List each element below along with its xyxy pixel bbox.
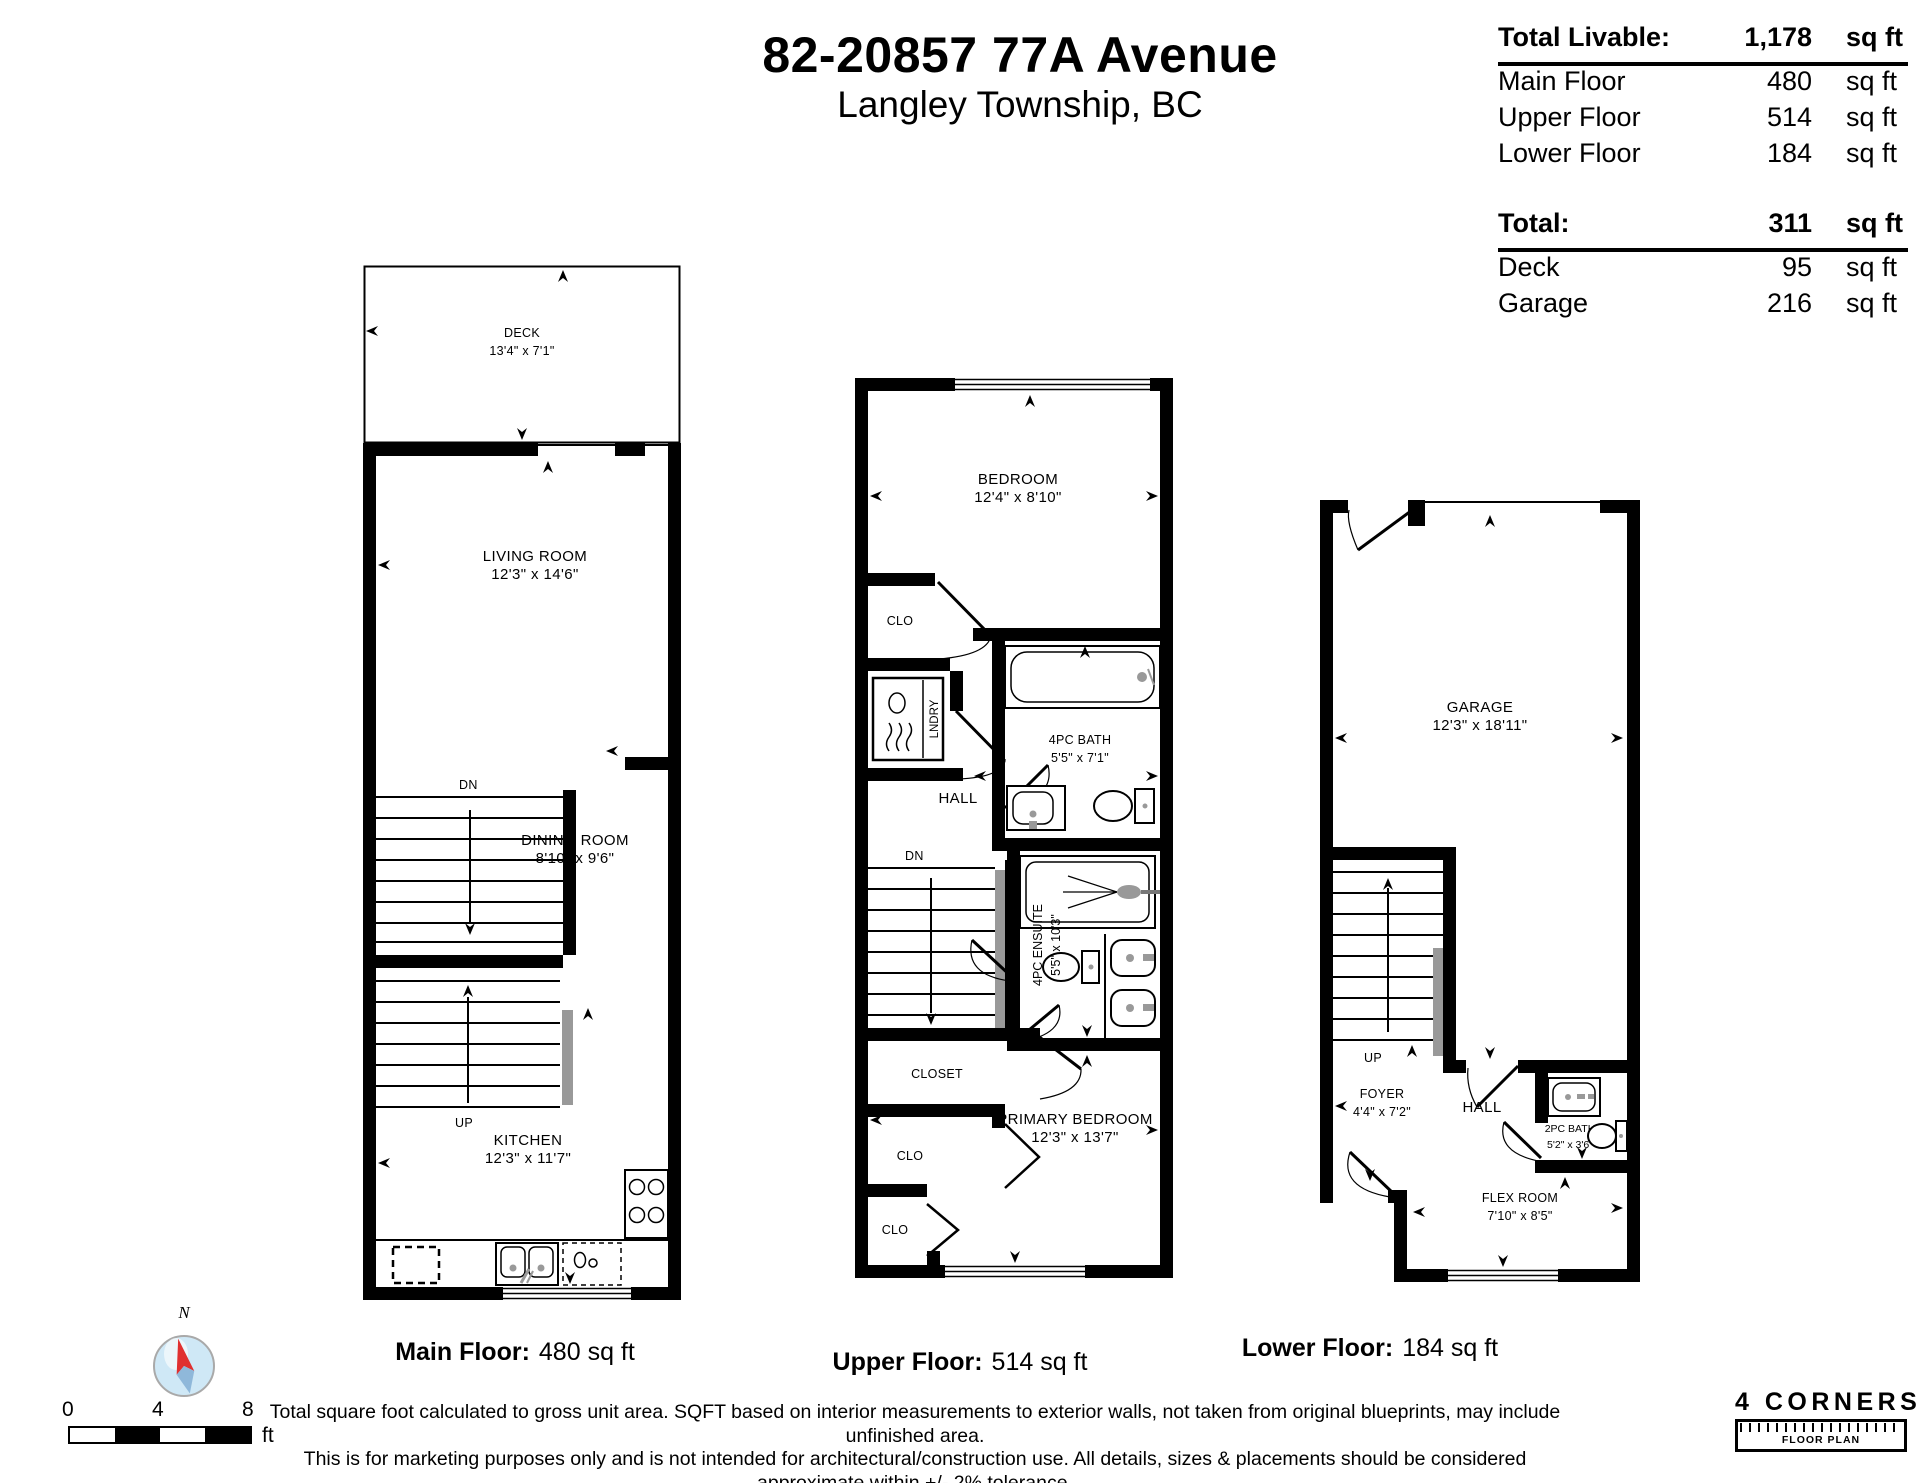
scale-tick-4: 4 <box>152 1398 164 1422</box>
entry-door-leaf <box>1358 508 1415 550</box>
deck-label: DECK <box>504 326 540 340</box>
caption-value: 480 sq ft <box>539 1338 635 1366</box>
bedroom-window <box>955 378 1150 391</box>
livable-value: 1,178 <box>1724 22 1812 53</box>
table-row: Lower Floor 184 sq ft <box>1498 138 1908 174</box>
toilet-icon <box>1588 1121 1627 1151</box>
lower-floor-caption: Lower Floor:184 sq ft <box>1160 1334 1580 1363</box>
stair-handrail <box>995 870 1005 1028</box>
living-room-label: LIVING ROOM <box>483 548 587 565</box>
sink-icon <box>1548 1078 1600 1116</box>
floorplan-sheet: 82-20857 77A Avenue Langley Township, BC… <box>0 0 1920 1483</box>
toilet-icon <box>1094 789 1154 823</box>
row-value: 514 <box>1724 102 1812 133</box>
foyer-label: FOYER <box>1360 1087 1405 1101</box>
row-value: 216 <box>1724 288 1812 319</box>
disclaimer-line2: This is for marketing purposes only and … <box>250 1448 1580 1483</box>
livable-unit: sq ft <box>1812 22 1908 53</box>
total-unit: sq ft <box>1812 208 1908 239</box>
double-vanity-icon <box>1105 934 1155 1038</box>
row-label: Garage <box>1498 288 1724 319</box>
dishwasher-icon <box>393 1247 439 1283</box>
table-header-total: Total: 311 sq ft <box>1498 208 1908 252</box>
bedroom-label: BEDROOM <box>978 471 1058 488</box>
dining-room-label: DINING ROOM <box>521 832 629 849</box>
living-room-dims: 12'3" x 14'6" <box>491 566 578 583</box>
ensuite-label: 4PC ENSUITE <box>1031 904 1045 986</box>
table-row: Deck 95 sq ft <box>1498 252 1908 288</box>
clo-label: CLO <box>882 1223 909 1237</box>
up-label: UP <box>455 1116 473 1130</box>
primary-bedroom-label: PRIMARY BEDROOM <box>997 1111 1152 1128</box>
laundry-unit-icon: LNDRY <box>873 678 943 760</box>
disclaimer-line1: Total square foot calculated to gross un… <box>250 1401 1580 1448</box>
row-value: 184 <box>1724 138 1812 169</box>
caption-label: Upper Floor: <box>833 1348 983 1376</box>
row-unit: sq ft <box>1812 102 1908 133</box>
row-unit: sq ft <box>1812 66 1908 97</box>
table-row: Upper Floor 514 sq ft <box>1498 102 1908 138</box>
row-unit: sq ft <box>1812 138 1908 169</box>
brand-logo: 4 CORNERS FLOOR PLAN <box>1735 1388 1920 1452</box>
table-row: Garage 216 sq ft <box>1498 288 1908 324</box>
ensuite-dims: 5'5" x 10'3" <box>1049 914 1063 976</box>
scale-bar <box>68 1426 252 1444</box>
deck-dims: 13'4" x 7'1" <box>489 344 554 358</box>
staircase: DN UP <box>376 778 576 1130</box>
bath-dims: 5'5" x 7'1" <box>1051 751 1109 765</box>
caption-value: 184 sq ft <box>1402 1334 1498 1362</box>
page-title: 82-20857 77A Avenue <box>660 26 1380 84</box>
door-arc <box>1040 1069 1081 1099</box>
caption-label: Main Floor: <box>395 1338 530 1366</box>
logo-name: 4 CORNERS <box>1735 1388 1920 1417</box>
scale-tick-0: 0 <box>62 1398 74 1422</box>
table-row: Main Floor 480 sq ft <box>1498 66 1908 102</box>
disclaimer: Total square foot calculated to gross un… <box>250 1401 1580 1483</box>
kitchen-sink-icon <box>496 1243 558 1285</box>
garage-dims: 12'3" x 18'11" <box>1432 717 1527 734</box>
livable-label: Total Livable: <box>1498 22 1724 53</box>
door-leaf <box>1504 1122 1541 1158</box>
staircase: UP <box>1333 872 1443 1065</box>
row-label: Deck <box>1498 252 1724 283</box>
sink-icon <box>1007 786 1065 830</box>
logo-subtitle: FLOOR PLAN <box>1738 1434 1904 1446</box>
main-floor-plan: DECK 13'4" x 7'1" LIVING ROOM 12'3" x 14… <box>363 265 681 1300</box>
bifold-door <box>927 1204 958 1256</box>
foyer-dims: 4'4" x 7'2" <box>1353 1105 1411 1119</box>
area-summary-table: Total Livable: 1,178 sq ft Main Floor 48… <box>1498 22 1908 324</box>
compass-icon: N <box>147 1300 223 1410</box>
dn-label: DN <box>459 778 478 792</box>
stove-icon <box>625 1170 668 1238</box>
bath-label: 4PC BATH <box>1049 733 1112 747</box>
hall-label: HALL <box>938 790 977 807</box>
row-unit: sq ft <box>1812 252 1908 283</box>
clo-label: CLO <box>897 1149 924 1163</box>
hall-label: HALL <box>1462 1099 1501 1116</box>
garage-label: GARAGE <box>1447 699 1514 716</box>
hall-walls <box>1456 1060 1640 1073</box>
compass-north-label: N <box>177 1303 191 1322</box>
dn-label: DN <box>905 849 924 863</box>
closet-walls <box>855 1104 1005 1265</box>
entry-door-arc <box>1348 510 1358 550</box>
total-label: Total: <box>1498 208 1724 239</box>
upper-floor-plan: BEDROOM 12'4" x 8'10" CLO LNDRY <box>855 378 1173 1278</box>
bedroom-dims: 12'4" x 8'10" <box>974 489 1061 506</box>
up-label: UP <box>1364 1051 1382 1065</box>
row-label: Upper Floor <box>1498 102 1724 133</box>
flex-window <box>1448 1269 1558 1282</box>
clo-label: CLO <box>887 614 914 628</box>
flex-room-dims: 7'10" x 8'5" <box>1487 1209 1552 1223</box>
row-value: 480 <box>1724 66 1812 97</box>
caption-label: Lower Floor: <box>1242 1334 1393 1362</box>
caption-value: 514 sq ft <box>992 1348 1088 1376</box>
row-label: Lower Floor <box>1498 138 1724 169</box>
total-value: 311 <box>1724 208 1812 239</box>
dining-room-dims: 8'10" x 9'6" <box>536 850 615 867</box>
upper-floor-caption: Upper Floor:514 sq ft <box>750 1348 1170 1377</box>
main-floor-caption: Main Floor:480 sq ft <box>305 1338 725 1367</box>
kitchen-label: KITCHEN <box>494 1132 563 1149</box>
stair-handrail <box>562 1010 573 1105</box>
kitchen-window <box>503 1287 631 1300</box>
primary-window <box>945 1265 1085 1278</box>
flex-room-label: FLEX ROOM <box>1482 1191 1558 1205</box>
door-leaf <box>938 582 991 636</box>
kitchen-dims: 12'3" x 11'7" <box>485 1150 571 1167</box>
laundry-label: LNDRY <box>929 699 941 738</box>
table-header-livable: Total Livable: 1,178 sq ft <box>1498 22 1908 66</box>
page-subtitle: Langley Township, BC <box>660 84 1380 126</box>
lower-floor-plan: GARAGE 12'3" x 18'11" UP FOYER 4'4" x 7 <box>1320 500 1640 1282</box>
row-label: Main Floor <box>1498 66 1724 97</box>
primary-bedroom-dims: 12'3" x 13'7" <box>1031 1129 1118 1146</box>
row-unit: sq ft <box>1812 288 1908 319</box>
logo-ruler-icon: FLOOR PLAN <box>1735 1419 1907 1452</box>
closet-label: CLOSET <box>911 1067 963 1081</box>
bath-dims: 5'2" x 3'6" <box>1547 1139 1593 1151</box>
row-value: 95 <box>1724 252 1812 283</box>
stair-handrail <box>1433 948 1443 1056</box>
